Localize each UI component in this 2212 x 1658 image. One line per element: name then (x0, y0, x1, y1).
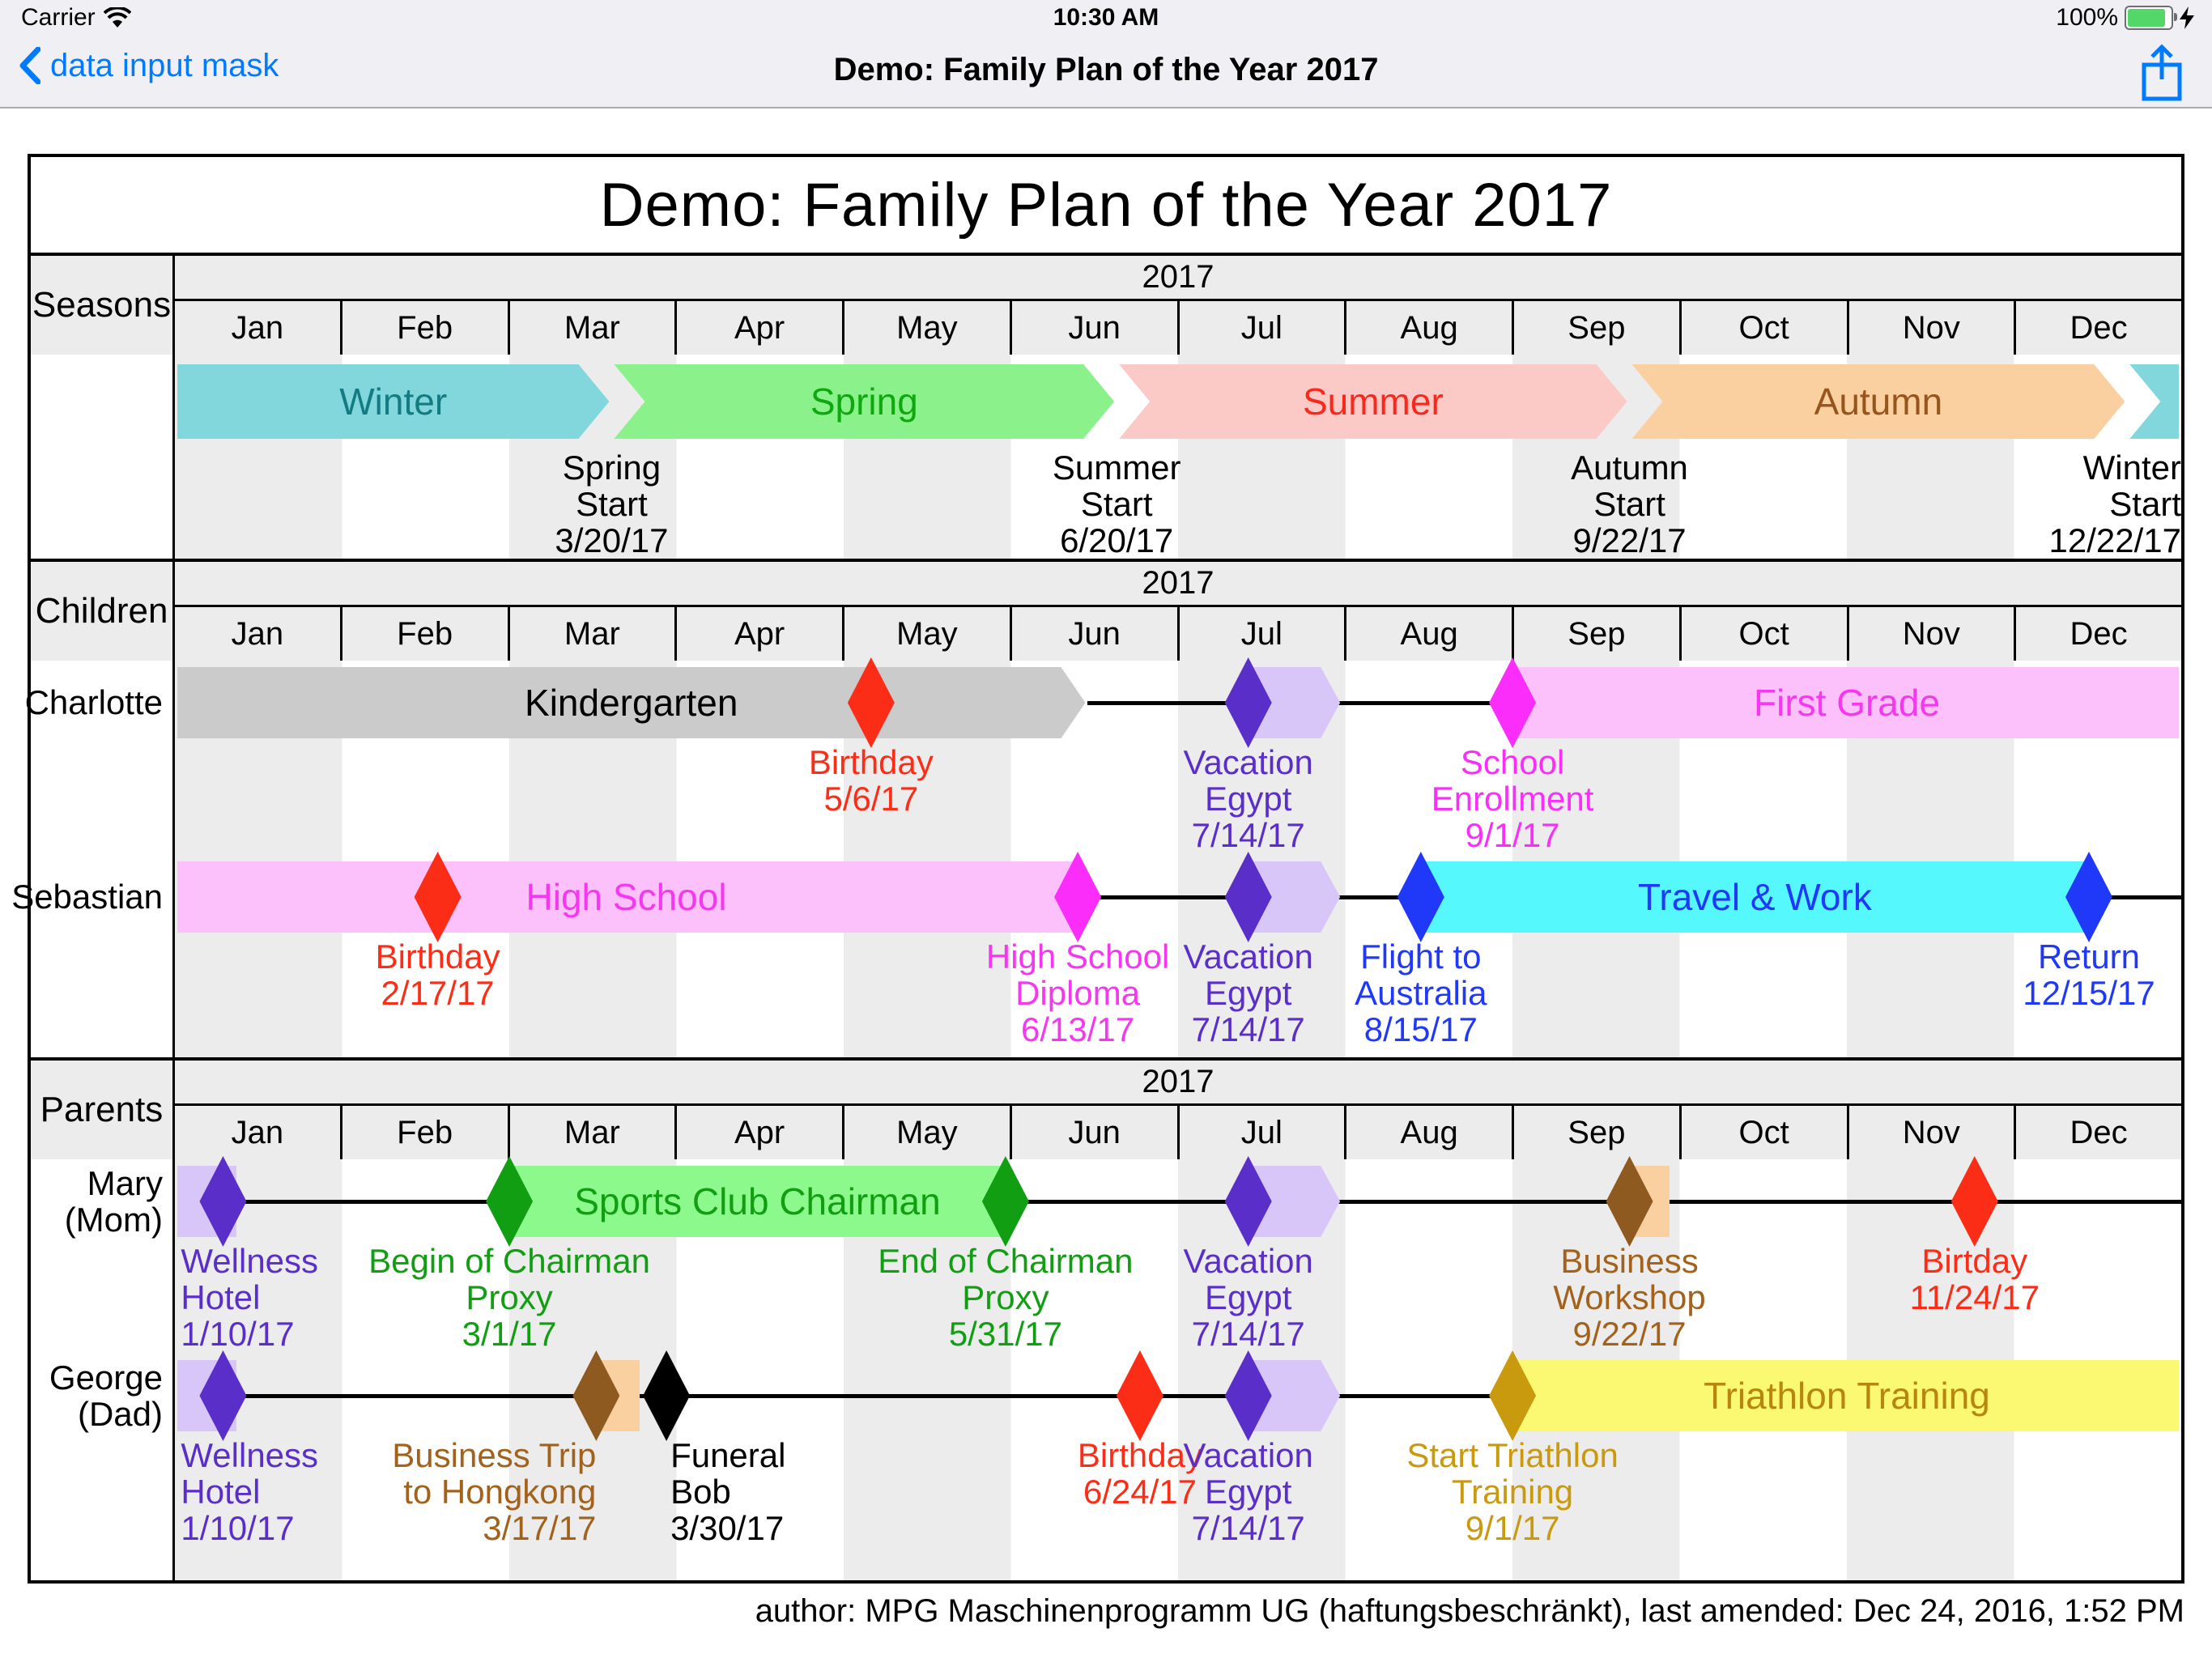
month-header-may: May (844, 301, 1012, 355)
event-label: Start Triathlon Training 9/1/17 (1406, 1438, 1618, 1547)
timeline-row-mary: Sports Club ChairmanWellness Hotel 1/10/… (31, 1159, 2181, 1354)
section-band-children: Children2017JanFebMarAprMayJunJulAugSepO… (31, 559, 2181, 661)
month-header-feb: Feb (342, 301, 510, 355)
event-label: Wellness Hotel 1/10/17 (181, 1438, 318, 1547)
timeline-row-charlotte: KindergartenFirst GradeBirthday 5/6/17Va… (31, 661, 2181, 855)
month-header-aug: Aug (1346, 607, 1514, 661)
bar-sports-club-chairman[interactable]: Sports Club Chairman (512, 1166, 1003, 1237)
battery-icon (2125, 6, 2173, 30)
milestone-diamond[interactable] (643, 1350, 690, 1441)
event-label: Birthday 5/6/17 (809, 745, 934, 818)
month-header-sep: Sep (1514, 607, 1682, 661)
row-label-mary: Mary (Mom) (36, 1159, 163, 1243)
bar-autumn[interactable]: Autumn (1632, 364, 2125, 439)
event-label: Winter Start 12/22/17 (2049, 450, 2182, 559)
event-label: High School Diploma 6/13/17 (986, 939, 1169, 1048)
year-header: 2017 (175, 1061, 2181, 1106)
row-label-column (31, 355, 175, 559)
event-label: Birthday 2/17/17 (376, 939, 500, 1012)
month-header-mar: Mar (510, 301, 678, 355)
month-header-row: JanFebMarAprMayJunJulAugSepOctNovDec (175, 301, 2181, 355)
battery-percent: 100% (2056, 4, 2118, 32)
month-header-may: May (844, 607, 1012, 661)
month-header-jan: Jan (175, 301, 342, 355)
event-label: Wellness Hotel 1/10/17 (181, 1243, 318, 1353)
month-header-jul: Jul (1180, 607, 1347, 661)
charging-bolt-icon (2180, 6, 2194, 29)
event-label: Summer Start 6/20/17 (1053, 450, 1181, 559)
event-label: Birtday 11/24/17 (1910, 1243, 2040, 1316)
section-label-children: Children (31, 562, 175, 661)
row-label-column: Mary (Mom) (31, 1159, 175, 1354)
row-label-column: Sebastian (31, 855, 175, 1057)
month-header-jun: Jun (1012, 607, 1180, 661)
event-label: Spring Start 3/20/17 (555, 450, 668, 559)
month-header-nov: Nov (1849, 607, 2017, 661)
year-header: 2017 (175, 562, 2181, 607)
month-header-row: JanFebMarAprMayJunJulAugSepOctNovDec (175, 1106, 2181, 1159)
event-label: Vacation Egypt 7/14/17 (1184, 1243, 1313, 1353)
section-label-seasons: Seasons (31, 256, 175, 355)
event-label: Return 12/15/17 (2023, 939, 2155, 1012)
row-timeline: WinterSpringSummerAutumnSpring Start 3/2… (175, 355, 2181, 559)
duration-bar[interactable] (2129, 364, 2179, 439)
month-header-feb: Feb (342, 607, 510, 661)
month-header-jan: Jan (175, 607, 342, 661)
month-header-apr: Apr (677, 301, 844, 355)
month-header-nov: Nov (1849, 301, 2017, 355)
year-header: 2017 (175, 256, 2181, 301)
nav-bar: data input mask Demo: Family Plan of the… (0, 36, 2212, 105)
author-footer: author: MPG Maschinenprogramm UG (haftun… (755, 1593, 2184, 1630)
event-label: Business Trip to Hongkong 3/17/17 (392, 1438, 596, 1547)
row-label-charlotte: Charlotte (36, 661, 163, 745)
event-label: Business Workshop 9/22/17 (1553, 1243, 1705, 1353)
gantt-chart: Demo: Family Plan of the Year 2017 Seaso… (28, 154, 2184, 1584)
month-header-jul: Jul (1180, 301, 1347, 355)
event-label: Autumn Start 9/22/17 (1571, 450, 1688, 559)
bar-first-grade[interactable]: First Grade (1515, 667, 2179, 738)
row-label-george: George (Dad) (36, 1354, 163, 1438)
month-header-oct: Oct (1682, 301, 1849, 355)
month-header-apr: Apr (677, 607, 844, 661)
event-label: Vacation Egypt 7/14/17 (1184, 745, 1313, 854)
row-timeline: KindergartenFirst GradeBirthday 5/6/17Va… (175, 661, 2181, 855)
timeline-row-seasons: WinterSpringSummerAutumnSpring Start 3/2… (31, 355, 2181, 559)
bar-spring[interactable]: Spring (614, 364, 1114, 439)
section-header-parents: 2017JanFebMarAprMayJunJulAugSepOctNovDec (175, 1061, 2181, 1159)
event-label: Vacation Egypt 7/14/17 (1184, 939, 1313, 1048)
month-header-dec: Dec (2016, 1106, 2181, 1159)
event-label: Vacation Egypt 7/14/17 (1184, 1438, 1313, 1547)
month-header-mar: Mar (510, 1106, 678, 1159)
month-header-row: JanFebMarAprMayJunJulAugSepOctNovDec (175, 607, 2181, 661)
event-label: Flight to Australia 8/15/17 (1355, 939, 1487, 1048)
bar-kindergarten[interactable]: Kindergarten (177, 667, 1085, 738)
month-header-feb: Feb (342, 1106, 510, 1159)
bar-high-school[interactable]: High School (177, 861, 1075, 933)
bar-winter[interactable]: Winter (177, 364, 609, 439)
section-label-parents: Parents (31, 1061, 175, 1159)
section-header-children: 2017JanFebMarAprMayJunJulAugSepOctNovDec (175, 562, 2181, 661)
timeline-row-george: Triathlon TrainingWellness Hotel 1/10/17… (31, 1354, 2181, 1580)
status-bar: Carrier 10:30 AM 100% (0, 0, 2212, 36)
month-header-sep: Sep (1514, 301, 1682, 355)
top-bars: Carrier 10:30 AM 100% data input mask De… (0, 0, 2212, 108)
timeline-row-sebastian: High SchoolTravel & WorkBirthday 2/17/17… (31, 855, 2181, 1057)
month-header-jul: Jul (1180, 1106, 1347, 1159)
section-band-seasons: Seasons2017JanFebMarAprMayJunJulAugSepOc… (31, 253, 2181, 355)
chart-title: Demo: Family Plan of the Year 2017 (31, 157, 2181, 253)
clock: 10:30 AM (0, 4, 2212, 32)
event-label: End of Chairman Proxy 5/31/17 (878, 1243, 1133, 1353)
bar-triathlon-training[interactable]: Triathlon Training (1515, 1360, 2179, 1431)
event-label: Funeral Bob 3/30/17 (670, 1438, 785, 1547)
row-label-sebastian: Sebastian (36, 855, 163, 939)
section-band-parents: Parents2017JanFebMarAprMayJunJulAugSepOc… (31, 1057, 2181, 1159)
month-header-oct: Oct (1682, 1106, 1849, 1159)
nav-title: Demo: Family Plan of the Year 2017 (0, 52, 2212, 88)
month-header-aug: Aug (1346, 1106, 1514, 1159)
month-header-dec: Dec (2016, 607, 2181, 661)
month-header-sep: Sep (1514, 1106, 1682, 1159)
month-header-jan: Jan (175, 1106, 342, 1159)
bar-travel-work[interactable]: Travel & Work (1423, 861, 2087, 933)
row-label-column: Charlotte (31, 661, 175, 855)
month-header-nov: Nov (1849, 1106, 2017, 1159)
month-header-dec: Dec (2016, 301, 2181, 355)
month-header-jun: Jun (1012, 301, 1180, 355)
month-header-mar: Mar (510, 607, 678, 661)
month-header-jun: Jun (1012, 1106, 1180, 1159)
milestone-diamond[interactable] (1117, 1350, 1163, 1441)
row-timeline: Triathlon TrainingWellness Hotel 1/10/17… (175, 1354, 2181, 1580)
month-header-aug: Aug (1346, 301, 1514, 355)
month-header-may: May (844, 1106, 1012, 1159)
event-label: School Enrollment 9/1/17 (1431, 745, 1594, 854)
section-header-seasons: 2017JanFebMarAprMayJunJulAugSepOctNovDec (175, 256, 2181, 355)
bar-summer[interactable]: Summer (1119, 364, 1627, 439)
month-header-oct: Oct (1682, 607, 1849, 661)
share-button[interactable] (2136, 44, 2188, 102)
row-label-column: George (Dad) (31, 1354, 175, 1580)
row-timeline: High SchoolTravel & WorkBirthday 2/17/17… (175, 855, 2181, 1057)
month-header-apr: Apr (677, 1106, 844, 1159)
row-timeline: Sports Club ChairmanWellness Hotel 1/10/… (175, 1159, 2181, 1354)
event-label: Begin of Chairman Proxy 3/1/17 (368, 1243, 650, 1353)
milestone-diamond[interactable] (1951, 1156, 1998, 1247)
